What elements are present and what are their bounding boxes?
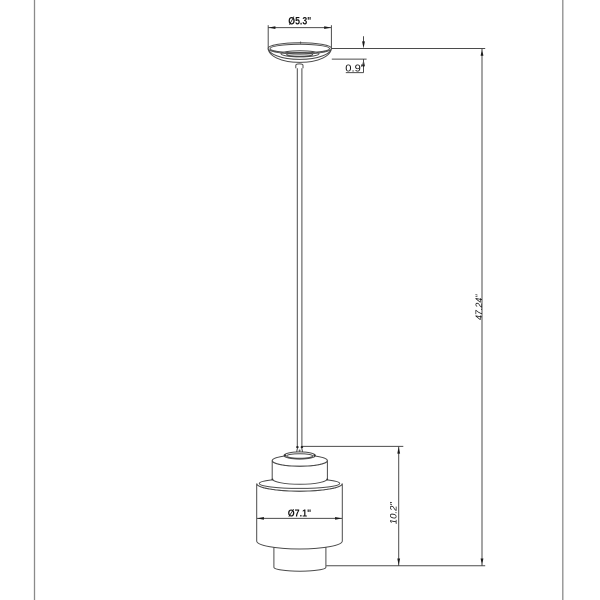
svg-text:Ø5.3": Ø5.3" [288,15,311,27]
svg-text:Ø7.1": Ø7.1" [288,509,312,520]
svg-text:0.9": 0.9" [345,63,365,74]
svg-text:47.24": 47.24" [474,294,484,320]
svg-text:10.2": 10.2" [389,502,400,525]
